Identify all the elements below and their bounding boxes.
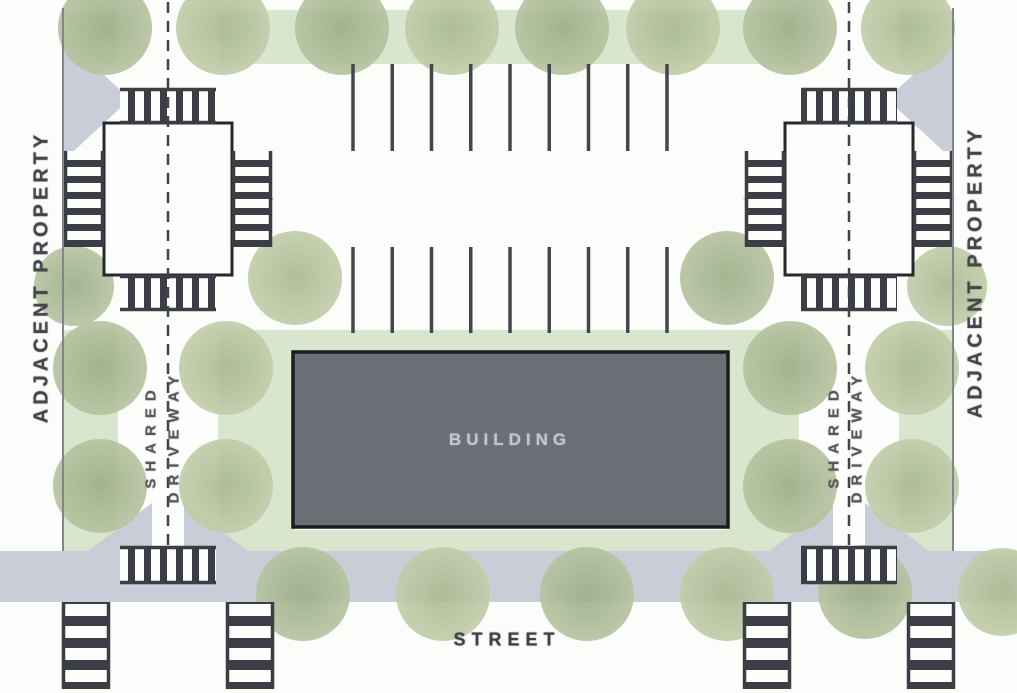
shared-driveway-label-left-line2: DRIVEWAY [163,369,186,504]
crosswalk [120,546,216,584]
crosswalk [62,602,110,689]
shared-driveway-label-right: SHARED DRIVEWAY [824,369,869,504]
crosswalk [232,151,272,247]
shared-driveway-label-right-line1: SHARED [824,369,847,504]
crosswalk [907,602,955,689]
shared-driveway-label-right-line2: DRIVEWAY [846,369,869,504]
tree-icon [179,439,273,533]
tree-icon [179,321,273,415]
crosswalk [745,151,785,247]
adjacent-property-label-left: ADJACENT PROPERTY [31,131,54,423]
tree-icon [396,547,490,641]
crosswalk [743,602,791,689]
street-label: STREET [453,630,560,651]
tree-icon [865,321,959,415]
tree-icon [53,439,147,533]
site-plan: ADJACENT PROPERTY ADJACENT PROPERTY SHAR… [0,0,1017,693]
site-plan-drawing [0,0,1017,693]
shared-driveway-label-left: SHARED DRIVEWAY [141,369,186,504]
tree-icon [540,547,634,641]
building-label: BUILDING [449,430,571,450]
tree-icon [53,321,147,415]
shared-driveway-label-left-line1: SHARED [141,369,164,504]
crosswalk [913,151,953,247]
tree-icon [865,439,959,533]
crosswalk [226,602,274,689]
crosswalk [64,151,104,247]
crosswalk [801,546,897,584]
adjacent-property-label-right: ADJACENT PROPERTY [965,126,988,418]
